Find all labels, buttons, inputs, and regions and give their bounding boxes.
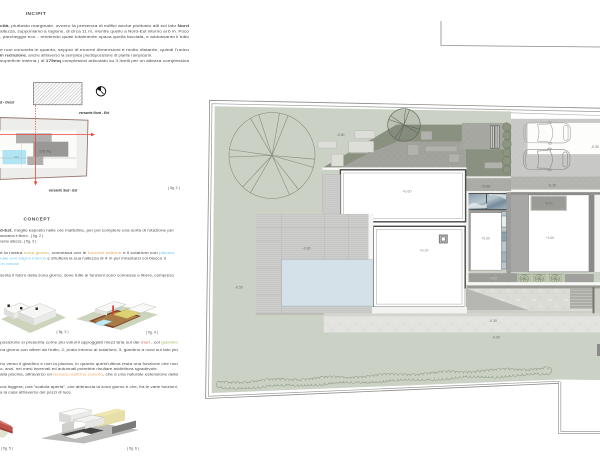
svg-text:( fig. 4 ): ( fig. 4 )	[146, 330, 158, 334]
svg-text:alla piscina, attraverso un te: alla piscina, attraverso un terrazzo est…	[0, 372, 179, 376]
svg-text:senta il fulcro della zona gio: senta il fulcro della zona giorno, dove …	[0, 273, 174, 277]
svg-text:-0.90: -0.90	[492, 336, 500, 340]
svg-text:+3.60: +3.60	[482, 185, 491, 189]
svg-text:-0.30: -0.30	[591, 145, 599, 149]
svg-text:( fig. 3 ): ( fig. 3 )	[56, 330, 68, 334]
svg-text:INCIPIT: INCIPIT	[26, 11, 47, 17]
svg-text:-0.50: -0.50	[235, 286, 243, 290]
svg-text:d - Ovest: d - Ovest	[0, 100, 15, 104]
svg-text:+0.00: +0.00	[544, 202, 552, 206]
svg-text:+3.60: +3.60	[546, 236, 555, 240]
svg-text:o, anzi, nei mesi invernali ed: o, anzi, nei mesi invernali ed autunnali…	[0, 367, 158, 371]
svg-text:175 mq: 175 mq	[39, 150, 51, 154]
svg-text:altezza, supponiamo a ragione,: altezza, supponiamo a ragione, di circa …	[0, 29, 189, 33]
svg-text:ura leggera, una “scatola aper: ura leggera, una “scatola aperta”, che a…	[0, 385, 178, 389]
svg-text:( fig. 6 ): ( fig. 6 )	[127, 447, 139, 451]
svg-text:in recinzione, anche attravers: in recinzione, anche attraverso la sempl…	[0, 54, 152, 58]
svg-text:( fig. 1 ): ( fig. 1 )	[168, 186, 180, 190]
svg-text:verse altezze. ( fig. 3 ): verse altezze. ( fig. 3 )	[0, 239, 36, 243]
svg-text:-0.30: -0.30	[489, 319, 497, 323]
svg-text:cità, piuttosto marginale, ovv: cità, piuttosto marginale, ovvero la pre…	[0, 24, 190, 28]
svg-text:superficie interna ) di 175mq: superficie interna ) di 175mq complessiv…	[0, 59, 190, 63]
svg-text:a la casa attraverso dei pozzi: a la casa attraverso dei pozzi di luce.	[0, 390, 72, 394]
svg-text:-0.15: -0.15	[548, 183, 556, 187]
svg-text:posizione si presenta come più: posizione si presenta come più volumi ap…	[0, 341, 178, 345]
svg-text:+6.60: +6.60	[402, 190, 411, 194]
svg-text:i in comune.: i in comune.	[0, 262, 20, 266]
svg-text:è la nostra zona giorno, conne: è la nostra zona giorno, connessa con le…	[0, 251, 175, 255]
svg-text:-0.30: -0.30	[303, 247, 311, 251]
svg-text:versante Nord - Est: versante Nord - Est	[79, 111, 110, 115]
svg-text:anorama è libero . ( fig. 2 ): anorama è libero . ( fig. 2 )	[0, 234, 43, 238]
svg-text:+6.30: +6.30	[419, 249, 428, 253]
svg-text:na giorno con alberi da frutto: na giorno con alberi da frutto, 2, prato…	[0, 348, 178, 352]
svg-text:d-Est, meglio esposto nelle or: d-Est, meglio esposto nelle ore mattutin…	[0, 228, 175, 232]
svg-text:+0.00: +0.00	[489, 277, 497, 281]
svg-text:versante Sud - Est: versante Sud - Est	[49, 189, 79, 193]
svg-text:( fig. 5 ): ( fig. 5 )	[1, 447, 13, 451]
svg-text:no verso il giardino e non la: no verso il giardino e non la piscina, i…	[0, 362, 178, 366]
svg-text:e non concreta in quanto, sepp: e non concreta in quanto, seppur di enor…	[0, 48, 189, 52]
svg-text:, parcheggio ecc... rendendo q: , parcheggio ecc... rendendo quasi total…	[0, 35, 189, 39]
svg-text:+5.60: +5.60	[481, 237, 490, 241]
svg-text:CONCEPT: CONCEPT	[24, 217, 51, 223]
svg-text:-0.30: -0.30	[337, 133, 345, 137]
svg-text:nale con bagno interno e sfrut: nale con bagno interno e sfrutterà la su…	[0, 256, 166, 260]
